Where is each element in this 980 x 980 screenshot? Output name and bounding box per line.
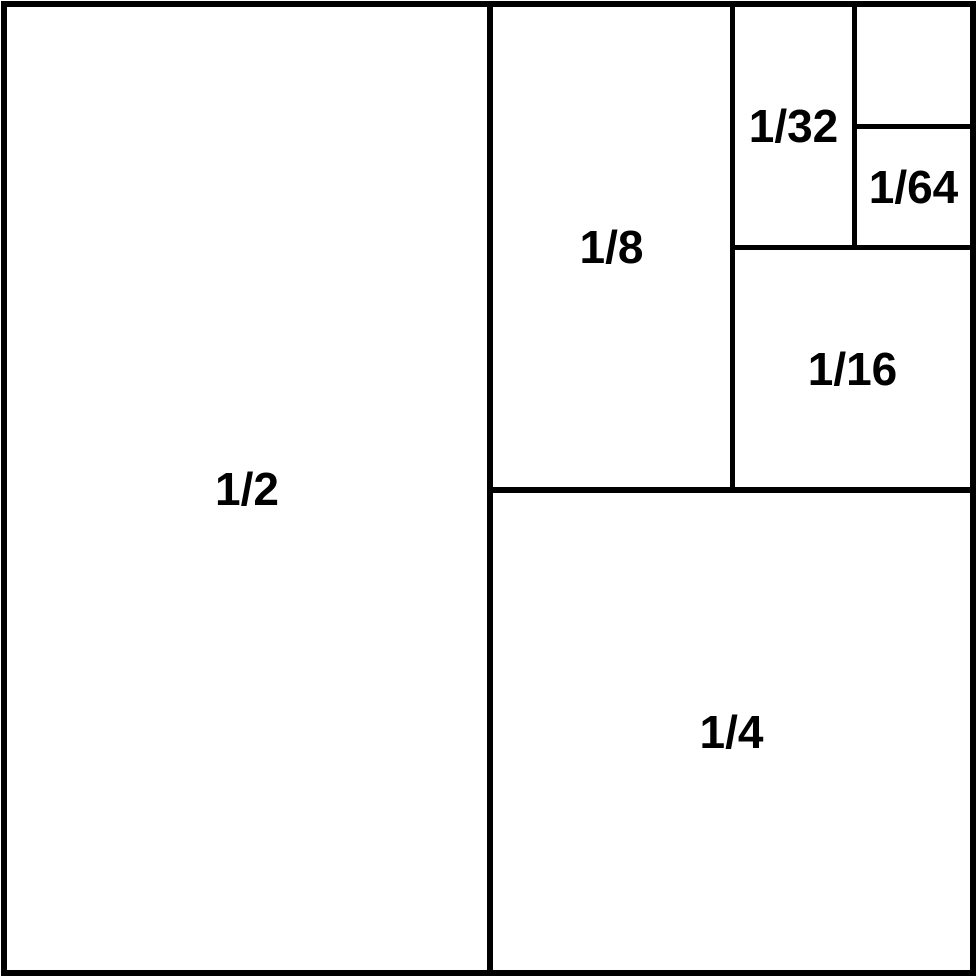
- region-one-half: 1/2: [7, 7, 487, 970]
- fraction-label-one-sixty-fourth: 1/64: [869, 164, 959, 210]
- region-one-quarter: 1/4: [493, 493, 970, 970]
- region-remainder-unlabeled: [857, 7, 970, 124]
- fraction-label-one-quarter: 1/4: [700, 709, 764, 755]
- region-one-thirty-second: 1/32: [735, 7, 852, 245]
- unit-square: 1/2 1/4 1/8 1/16 1/32 1/64: [1, 1, 976, 976]
- region-one-eighth: 1/8: [493, 7, 730, 487]
- diagram-canvas: 1/2 1/4 1/8 1/16 1/32 1/64: [0, 0, 980, 980]
- fraction-label-one-eighth: 1/8: [580, 224, 644, 270]
- region-one-sixteenth: 1/16: [735, 250, 970, 487]
- fraction-label-one-sixteenth: 1/16: [808, 346, 898, 392]
- region-one-sixty-fourth: 1/64: [857, 129, 970, 245]
- fraction-label-one-thirty-second: 1/32: [749, 103, 839, 149]
- fraction-label-one-half: 1/2: [215, 466, 279, 512]
